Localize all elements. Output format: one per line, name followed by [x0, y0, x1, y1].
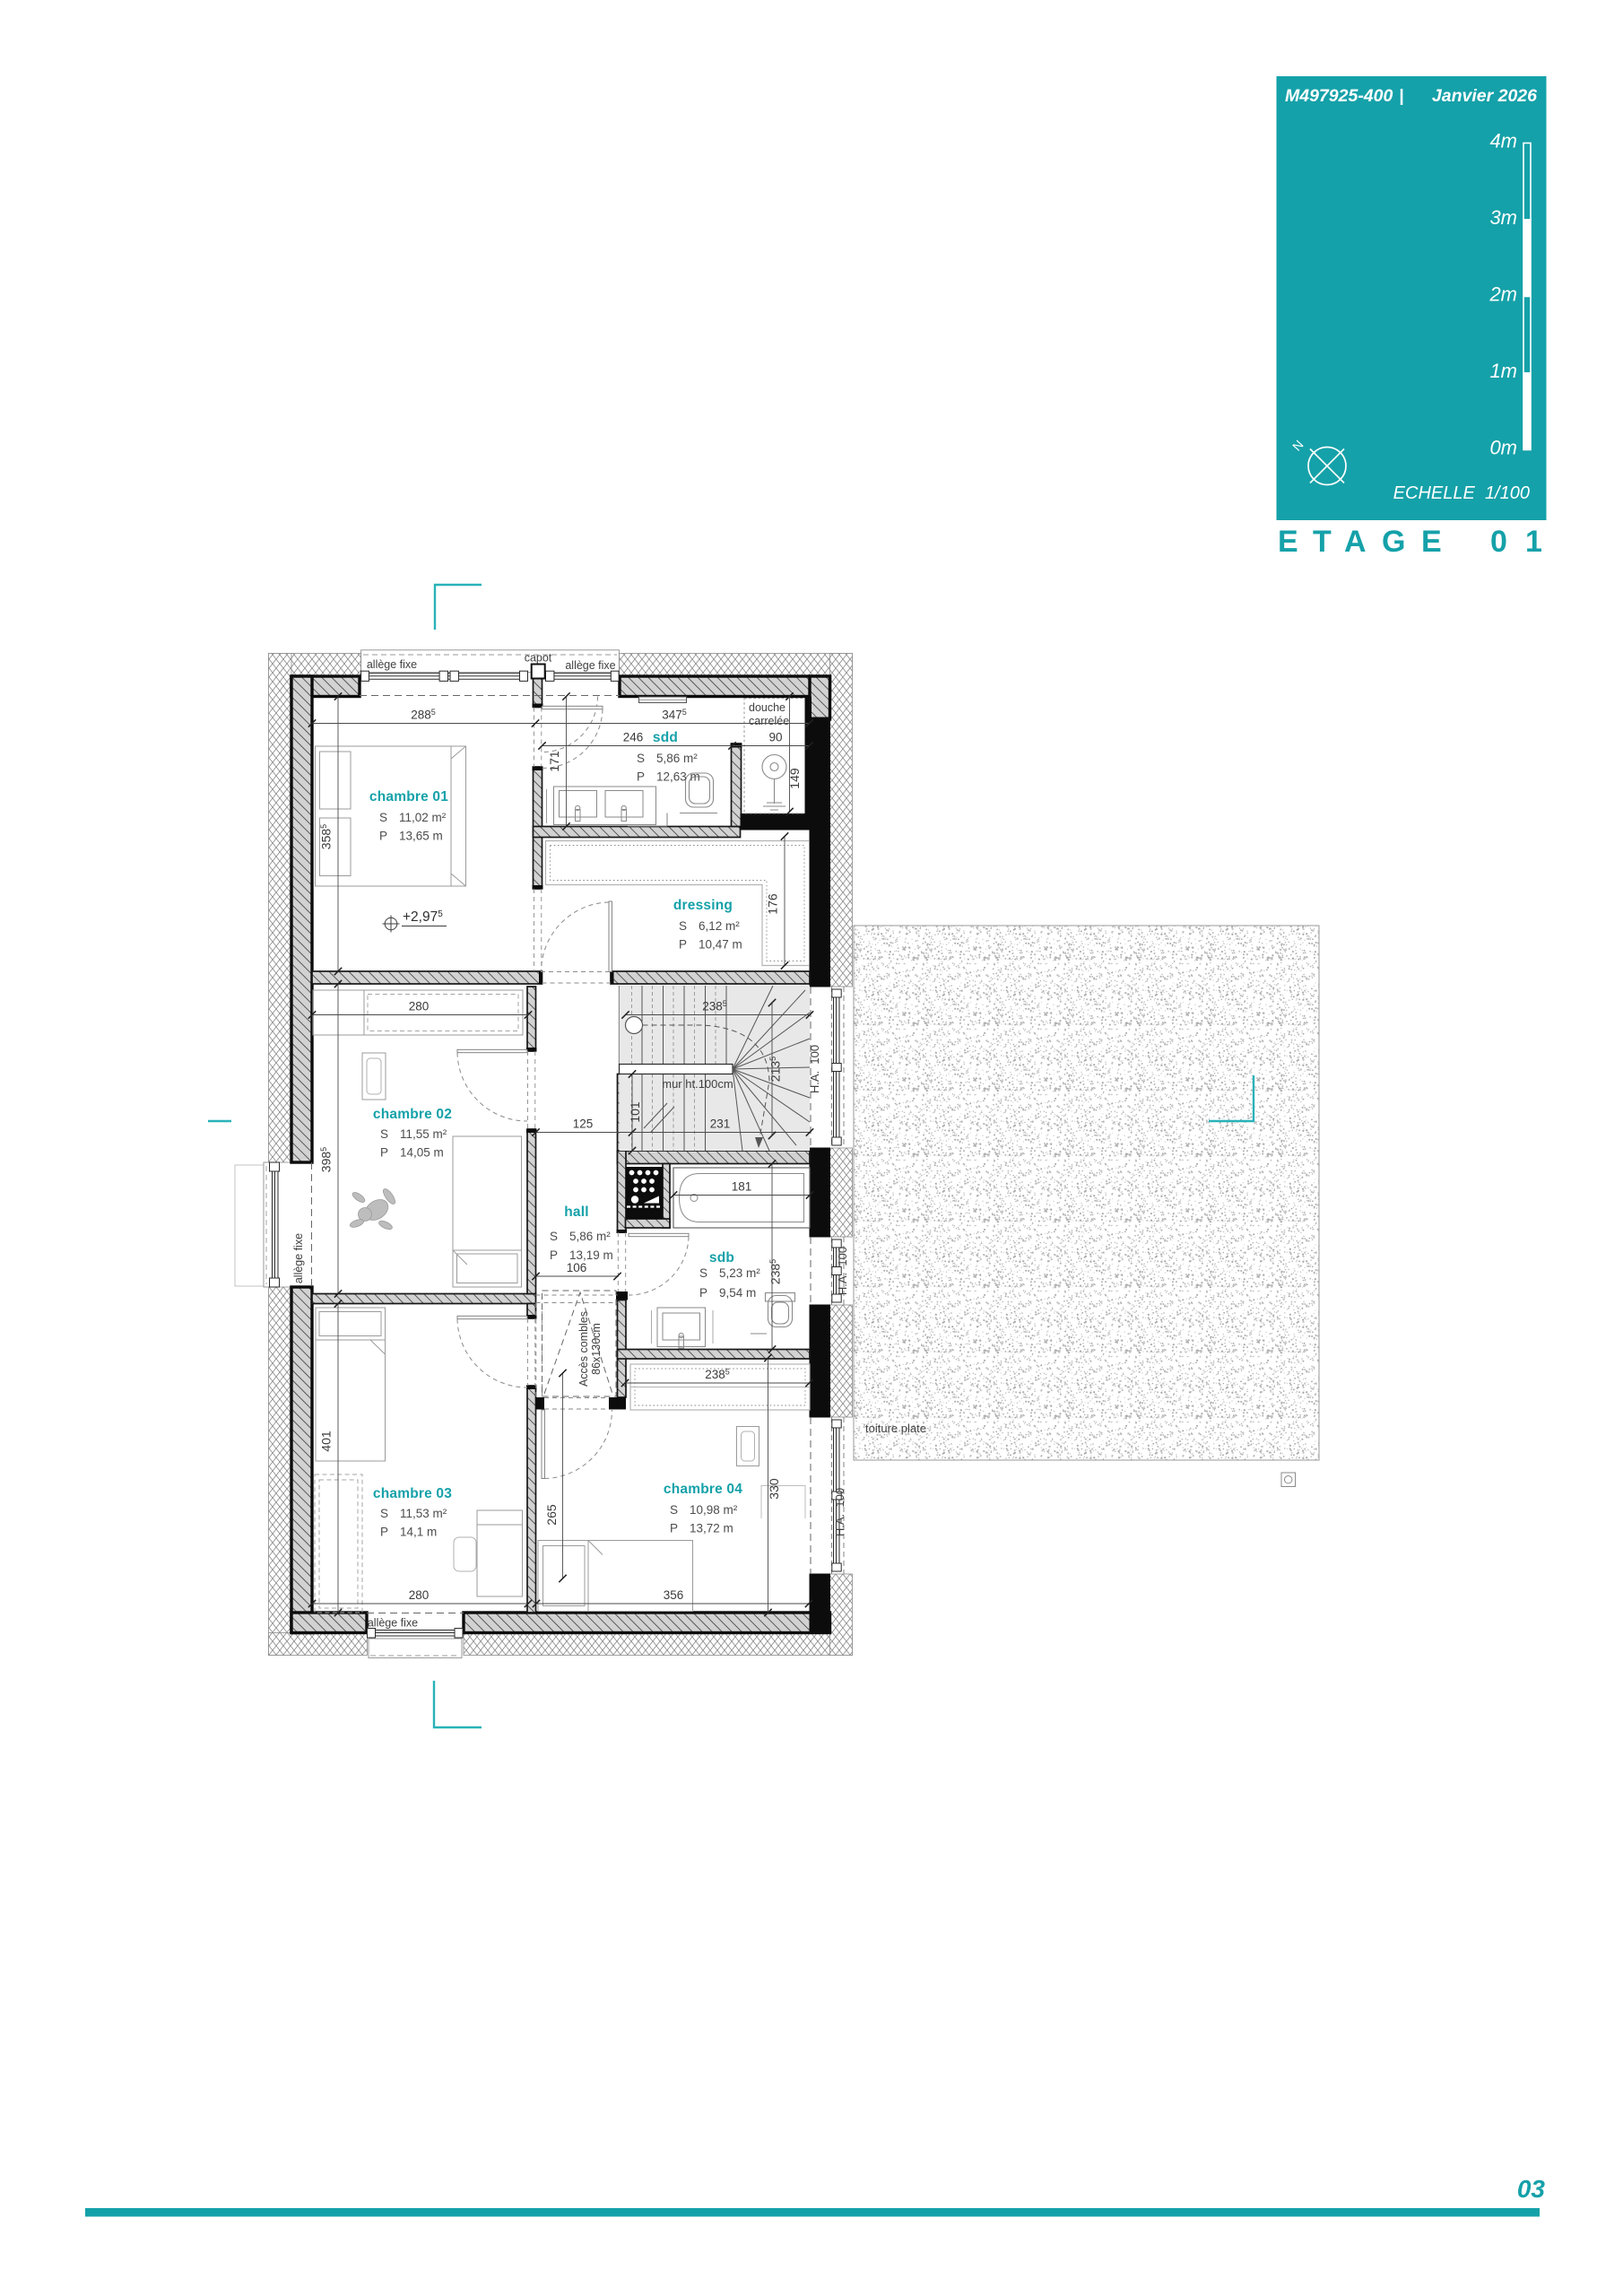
svg-text:4m: 4m [1489, 130, 1517, 152]
svg-text:carrelée: carrelée [749, 715, 789, 727]
svg-text:401: 401 [319, 1431, 334, 1452]
svg-text:ECHELLE 1/100: ECHELLE 1/100 [1393, 483, 1530, 503]
svg-text:2m: 2m [1488, 283, 1517, 306]
svg-text:101: 101 [628, 1101, 642, 1123]
svg-text:3m: 3m [1489, 206, 1517, 229]
svg-text:1m: 1m [1489, 360, 1517, 382]
svg-text:allège fixe: allège fixe [367, 658, 417, 671]
svg-text:hall: hall [564, 1205, 589, 1220]
svg-text:dressing: dressing [673, 898, 733, 913]
svg-text:chambre 01: chambre 01 [369, 789, 448, 804]
svg-text:H.A. 100: H.A. 100 [836, 1247, 849, 1295]
svg-text:Accès combles: Accès combles [577, 1311, 590, 1387]
svg-text:356: 356 [664, 1588, 684, 1602]
svg-text:330: 330 [767, 1478, 781, 1500]
svg-text:03: 03 [1517, 2175, 1546, 2203]
svg-text:G: G [1382, 525, 1405, 559]
svg-text:280: 280 [409, 1588, 430, 1602]
svg-text:allège fixe: allège fixe [292, 1233, 305, 1283]
svg-text:|: | [1399, 86, 1403, 106]
svg-text:E: E [1278, 525, 1298, 559]
svg-text:Janvier 2026: Janvier 2026 [1432, 86, 1537, 106]
svg-text:toiture plate: toiture plate [865, 1422, 926, 1435]
svg-text:171: 171 [547, 751, 561, 772]
svg-text:T: T [1313, 525, 1332, 559]
svg-text:M497925-400: M497925-400 [1285, 86, 1393, 106]
svg-text:capot: capot [525, 652, 552, 665]
svg-text:H.A. 100: H.A. 100 [808, 1045, 821, 1093]
svg-text:280: 280 [409, 1000, 430, 1013]
svg-text:chambre 02: chambre 02 [373, 1107, 452, 1122]
svg-text:1: 1 [1525, 525, 1542, 559]
svg-text:149: 149 [787, 768, 802, 789]
svg-text:86x130cm: 86x130cm [590, 1323, 603, 1375]
svg-text:106: 106 [567, 1261, 587, 1274]
svg-text:chambre 04: chambre 04 [664, 1482, 742, 1497]
svg-text:90: 90 [768, 731, 782, 744]
svg-text:H.A. 100: H.A. 100 [833, 1488, 846, 1536]
svg-text:176: 176 [766, 893, 780, 915]
svg-text:sdd: sdd [653, 730, 678, 745]
svg-text:sdb: sdb [709, 1250, 734, 1265]
svg-text:0m: 0m [1489, 437, 1517, 459]
svg-text:E: E [1421, 525, 1442, 559]
svg-text:chambre 03: chambre 03 [373, 1486, 452, 1501]
svg-text:246: 246 [623, 731, 644, 744]
svg-text:douche: douche [749, 701, 785, 714]
svg-text:231: 231 [710, 1118, 731, 1131]
svg-text:+2,975: +2,975 [403, 909, 443, 925]
svg-text:allège fixe: allège fixe [368, 1617, 418, 1630]
svg-text:A: A [1344, 525, 1367, 559]
svg-text:allège fixe: allège fixe [565, 659, 615, 672]
svg-text:mur ht.100cm: mur ht.100cm [662, 1077, 733, 1091]
svg-text:181: 181 [732, 1180, 752, 1194]
svg-text:0: 0 [1490, 525, 1507, 559]
svg-text:265: 265 [544, 1504, 559, 1526]
svg-text:125: 125 [573, 1118, 594, 1131]
